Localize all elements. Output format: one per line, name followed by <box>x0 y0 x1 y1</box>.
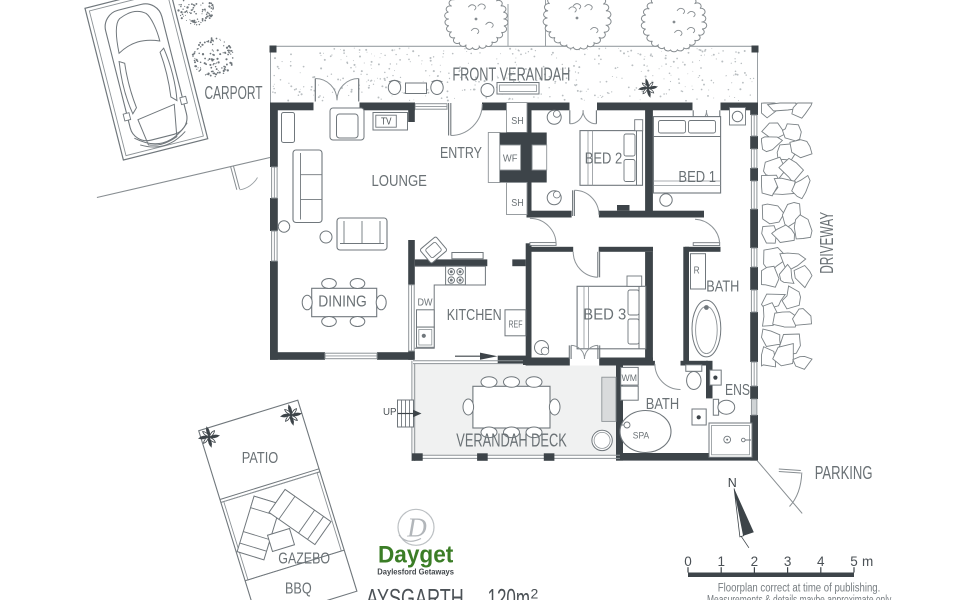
svg-text:D: D <box>406 513 427 543</box>
svg-text:Dayget: Dayget <box>378 542 453 569</box>
svg-text:FRONT VERANDAH: FRONT VERANDAH <box>452 64 570 85</box>
svg-text:SH: SH <box>511 116 524 127</box>
svg-text:3: 3 <box>784 554 792 569</box>
svg-text:2: 2 <box>531 586 539 600</box>
svg-text:LOUNGE: LOUNGE <box>372 173 427 190</box>
svg-text:BED 2: BED 2 <box>585 150 623 167</box>
svg-text:CARPORT: CARPORT <box>205 82 263 103</box>
svg-text:R: R <box>694 265 700 276</box>
svg-text:WM: WM <box>622 373 638 384</box>
svg-text:PATIO: PATIO <box>242 450 279 467</box>
svg-text:VERANDAH DECK: VERANDAH DECK <box>456 430 567 450</box>
svg-text:BBQ: BBQ <box>285 580 312 597</box>
svg-text:SH: SH <box>511 198 524 209</box>
svg-text:DW: DW <box>418 298 433 309</box>
svg-text:UP: UP <box>383 406 397 418</box>
svg-text:5: 5 <box>850 554 858 569</box>
svg-text:WF: WF <box>503 154 518 165</box>
svg-text:4: 4 <box>817 554 825 569</box>
svg-text:BATH: BATH <box>706 279 739 296</box>
svg-text:BED 3: BED 3 <box>583 307 626 324</box>
svg-text:PARKING: PARKING <box>815 462 873 483</box>
svg-text:2: 2 <box>751 554 759 569</box>
svg-text:Measurements & details maybe a: Measurements & details maybe approximate… <box>707 595 893 600</box>
svg-text:SPA: SPA <box>633 430 650 441</box>
svg-text:BED 1: BED 1 <box>678 169 716 186</box>
svg-text:1: 1 <box>717 554 725 569</box>
svg-text:0: 0 <box>684 554 692 569</box>
svg-text:GAZEBO: GAZEBO <box>278 550 330 567</box>
svg-text:ENTRY: ENTRY <box>440 145 482 162</box>
svg-text:m: m <box>862 554 873 569</box>
svg-text:DRIVEWAY: DRIVEWAY <box>816 212 837 274</box>
svg-text:REF: REF <box>509 320 523 331</box>
svg-text:Floorplan correct at time of p: Floorplan correct at time of publishing. <box>718 582 881 594</box>
svg-text:DINING: DINING <box>318 294 366 311</box>
svg-text:TV: TV <box>381 117 392 128</box>
svg-text:BATH: BATH <box>646 396 679 413</box>
svg-text:KITCHEN: KITCHEN <box>447 307 502 324</box>
svg-text:ENS: ENS <box>725 382 750 399</box>
svg-text:120m: 120m <box>488 584 531 600</box>
svg-text:N: N <box>728 475 737 490</box>
svg-text:AYSGARTH: AYSGARTH <box>366 584 464 600</box>
svg-text:Daylesford Getaways: Daylesford Getaways <box>377 567 454 577</box>
